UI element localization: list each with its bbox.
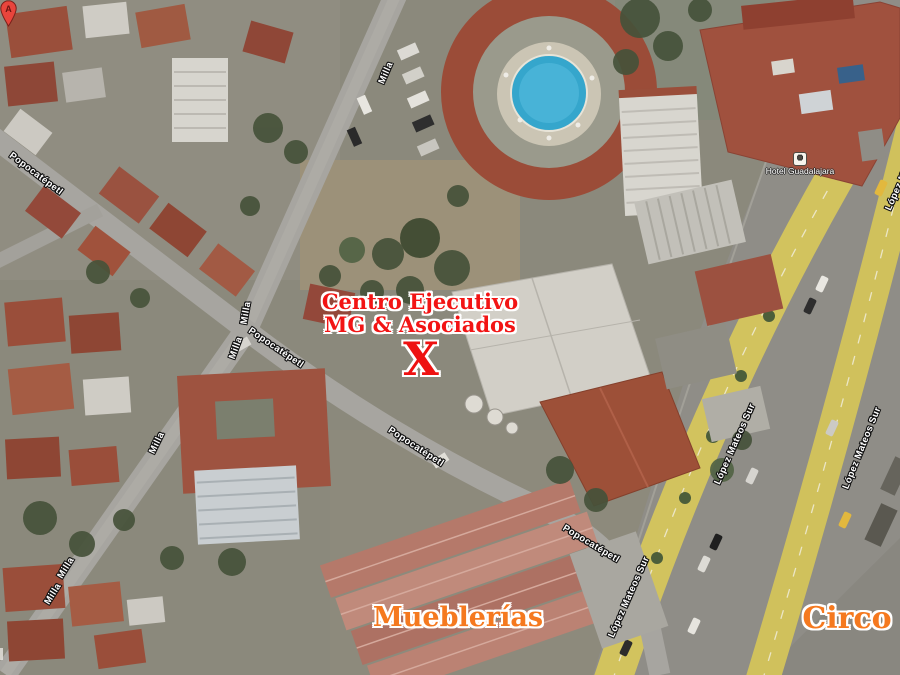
- map-canvas[interactable]: MillaMillaMillaMillaMillaMillaPopocatépe…: [0, 0, 900, 675]
- pin-letter: A: [5, 4, 12, 14]
- area-label-circo: Circo: [802, 601, 891, 636]
- destination-line1: Centro Ejecutivo: [322, 290, 518, 313]
- hotel-ring: [457, 0, 641, 184]
- poi-label: Hotel Guadalajara: [766, 166, 835, 176]
- satellite-imagery: [0, 0, 900, 675]
- map-pin[interactable]: A: [0, 0, 17, 27]
- poi-hotel-guadalajara: ■ Hotel Guadalajara: [765, 152, 835, 177]
- destination-x-marker: X: [403, 336, 439, 382]
- destination-label: Centro Ejecutivo MG & Asociados: [322, 290, 518, 336]
- lodging-icon: ■: [793, 152, 807, 166]
- area-label-muebleria: Mueblerías: [373, 602, 543, 633]
